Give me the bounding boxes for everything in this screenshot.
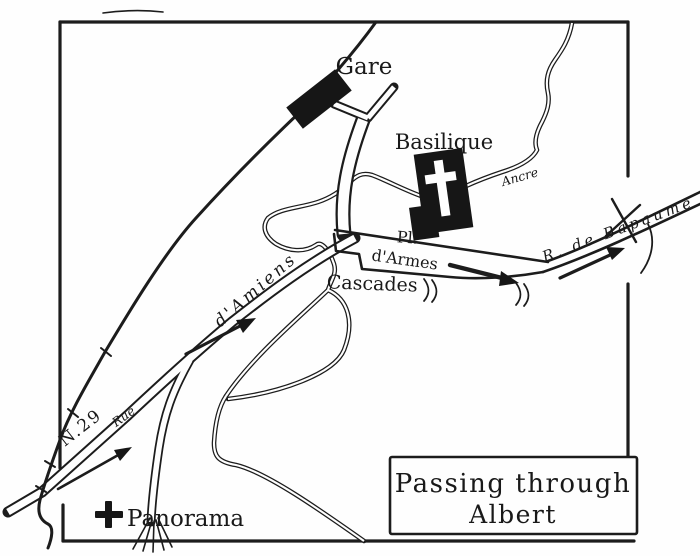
place-darmes-road	[334, 230, 548, 278]
panorama-cross-icon	[95, 501, 123, 528]
label-amiens: d'Amiens	[210, 249, 301, 332]
label-basilique: Basilique	[395, 130, 493, 154]
albert-sketch-map: Gare Basilique Ancre Pl. d'Armes R. de B…	[0, 0, 700, 556]
roads-outline	[8, 87, 394, 522]
roads-core	[8, 87, 394, 522]
label-panorama: Panorama	[127, 506, 244, 532]
map-figure: Gare Basilique Ancre Pl. d'Armes R. de B…	[0, 0, 700, 556]
label-bapaume: R. de Bapaume	[539, 193, 697, 267]
label-gare: Gare	[336, 54, 393, 80]
label-ancre: Ancre	[499, 164, 540, 189]
label-cascades: Cascades	[326, 271, 417, 296]
title-line1: Passing through	[395, 469, 631, 499]
border-sketch-stray-mark	[103, 11, 163, 13]
label-place-line2: d'Armes	[370, 246, 439, 274]
title-box: Passing through Albert	[390, 457, 637, 534]
label-place-line1: Pl.	[396, 227, 418, 247]
title-line2: Albert	[468, 500, 557, 529]
